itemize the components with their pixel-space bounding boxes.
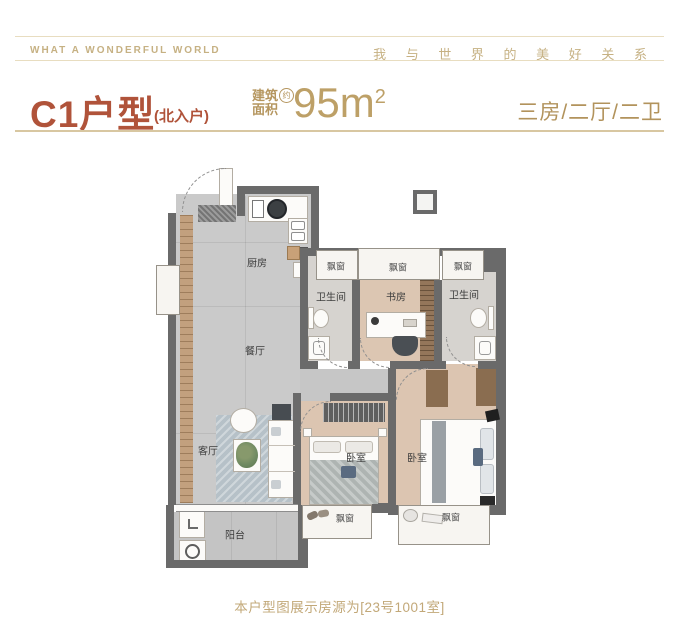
sink-basin-top (291, 221, 305, 230)
entry-direction-note: (北入户) (154, 105, 209, 126)
bed-master-cushion (473, 448, 483, 466)
rooms-summary: 三房/二厅/二卫 (517, 96, 663, 126)
sofa-pillow-2 (271, 480, 281, 489)
study-door-arc (360, 338, 390, 368)
bath-right-door-arc (446, 337, 476, 367)
wall-kitchen-top (237, 186, 319, 194)
label-bedroom-right: 卧室 (407, 450, 427, 465)
tile-line (176, 242, 300, 243)
living-armchair (230, 408, 257, 433)
wall-study-bath2 (434, 280, 442, 369)
sofa-pillow-1 (271, 427, 281, 436)
wall-band-bottom-a (300, 361, 318, 369)
wall-kitchen-right (311, 186, 319, 252)
master-decor-bench (480, 496, 495, 505)
desk-item-light (403, 319, 417, 327)
bedroom1-wardrobe-slats (323, 403, 385, 422)
wall-cabinet-strip (180, 215, 193, 503)
wall-band-bottom-d (478, 361, 506, 369)
label-study: 书房 (386, 289, 406, 304)
living-balcony-window (176, 504, 298, 512)
area-value: 95m2 (293, 79, 386, 127)
floorplan-page: WHAT A WONDERFUL WORLD 我 与 世 界 的 美 好 关 系… (0, 0, 679, 625)
bed-master-pillow-2 (480, 464, 494, 494)
sofa-cushion-line-1 (268, 445, 295, 446)
left-equipment-platform (156, 265, 180, 315)
tile-line (276, 512, 277, 560)
label-bath-right: 卫生间 (449, 287, 479, 302)
label-bay-top-left: 飘窗 (327, 260, 345, 273)
washbasin-right-bowl (479, 341, 491, 355)
wall-bedroom1-top (330, 393, 396, 401)
master-wardrobe-b-slats (476, 368, 498, 406)
label-bay-bottom-right: 飘窗 (442, 511, 460, 524)
approx-circle-badge: 约 (279, 88, 294, 103)
bed-master-runner (432, 421, 446, 503)
wall-left-lower (168, 313, 176, 505)
label-kitchen: 厨房 (247, 255, 267, 270)
master-wardrobe-b (476, 368, 498, 406)
toilet-right-tank (488, 306, 494, 330)
living-plant (236, 442, 258, 468)
balcony-faucet-icon (188, 519, 198, 529)
wall-band-left (300, 248, 308, 369)
bed-left-cushion (341, 466, 356, 478)
wall-balcony-bottom (166, 560, 308, 568)
bay-decor-stool (403, 509, 418, 522)
label-bay-bottom-left: 飘窗 (336, 512, 354, 525)
wall-living-bedroom1 (293, 393, 301, 512)
wall-band-bottom-c (390, 361, 446, 369)
nightstand-right (378, 428, 387, 437)
bedroom1-wardrobe (323, 403, 385, 422)
label-bay-top-right: 飘窗 (454, 260, 472, 273)
entry-door-arc (182, 168, 226, 212)
header-rule-top (15, 36, 664, 37)
area-exponent: 2 (375, 86, 386, 108)
label-living: 客厅 (198, 443, 218, 458)
tile-line (176, 306, 300, 307)
area-label-line1: 建筑 (252, 88, 278, 103)
area-label-line2: 面积 (252, 102, 278, 117)
wall-bedroom1-master (388, 368, 396, 512)
washing-machine-drum (185, 544, 200, 559)
footer-note: 本户型图展示房源为[23号1001室] (0, 596, 679, 616)
wall-master-bottom-right (490, 505, 506, 515)
desk-item-dark (371, 317, 379, 325)
label-bedroom-left: 卧室 (346, 450, 366, 465)
toilet-left-bowl (313, 309, 329, 328)
bath-left-door-arc (318, 338, 348, 368)
wall-bath1-study (352, 280, 360, 369)
kitchen-hob-icon (252, 200, 264, 218)
label-dining: 餐厅 (245, 343, 265, 358)
label-bath-left: 卫生间 (316, 289, 346, 304)
sofa-cushion-line-2 (268, 471, 295, 472)
wall-entry-jamb (237, 186, 245, 216)
header-slogan-en: WHAT A WONDERFUL WORLD (30, 45, 221, 56)
master-wardrobe-a-slats (426, 370, 448, 407)
stove-burner-icon (267, 199, 287, 219)
area-label: 建筑约 面积 (252, 88, 294, 117)
master-wardrobe-a (426, 370, 448, 407)
wall-left-upper (168, 213, 176, 267)
shaft-inner (417, 194, 433, 210)
label-bay-top-center: 飘窗 (389, 261, 407, 274)
wall-right-outer (496, 264, 506, 515)
study-desk (366, 312, 426, 338)
toilet-right-bowl (470, 308, 487, 328)
title-divider (15, 130, 664, 132)
floor-plan: 厨房 餐厅 客厅 阳台 卫生间 书房 卫生间 卧室 卧室 飘窗 飘窗 飘窗 飘窗… (155, 165, 511, 577)
header-rule-bottom (15, 60, 664, 61)
sink-basin-bottom (291, 232, 305, 241)
wall-balcony-left (166, 505, 174, 568)
wall-band-bottom-b (348, 361, 360, 369)
bed-left-pillow-1 (313, 441, 341, 453)
label-balcony: 阳台 (225, 527, 245, 542)
kitchen-cabinet (287, 246, 300, 260)
